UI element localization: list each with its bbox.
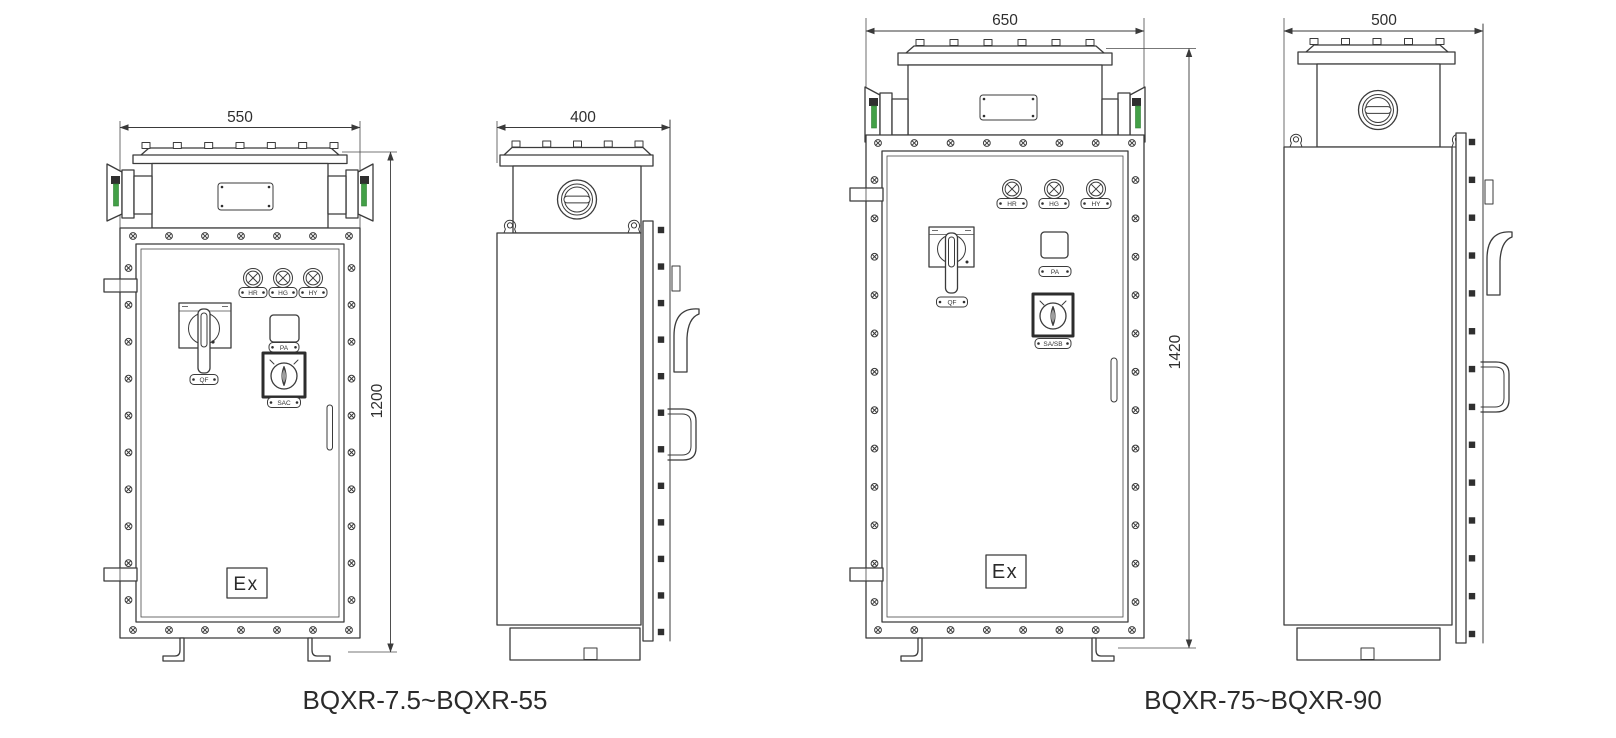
gland-bolt <box>360 176 369 184</box>
bolt-icon <box>1086 40 1094 46</box>
door <box>882 151 1128 622</box>
bolt-icon <box>543 141 551 147</box>
width-dim-label-large: 650 <box>992 12 1018 29</box>
width-dim-label-small: 550 <box>227 109 253 126</box>
bolt-icon <box>1469 442 1475 448</box>
bolt-icon <box>658 483 664 489</box>
bolt-icon <box>1469 366 1475 372</box>
bolt-icon <box>1469 479 1475 485</box>
terminal-box-lid <box>500 155 653 166</box>
height-dim-label-small: 1200 <box>369 383 386 418</box>
ex-marking: Ex <box>986 555 1026 588</box>
bolt-icon <box>658 336 664 342</box>
bolt-icon <box>574 141 582 147</box>
bolt-icon <box>950 40 958 46</box>
cabinet-body <box>497 233 641 625</box>
door-latch <box>1485 180 1493 204</box>
breaker-lever-side <box>674 309 699 372</box>
lamp-label: HY <box>308 290 318 297</box>
depth-dim-label-large: 500 <box>1371 12 1397 29</box>
front-view-small-model: 550 1200 <box>104 109 397 661</box>
caption-small-model: BQXR-7.5~BQXR-55 <box>303 685 548 715</box>
foot-right <box>1092 638 1114 661</box>
breaker-lever-side <box>1487 232 1512 295</box>
bolt-icon <box>604 141 612 147</box>
selector-label-plate: SAC <box>268 398 301 408</box>
door-edge <box>1456 133 1466 643</box>
bolt-icon <box>658 629 664 635</box>
hinge-tab <box>104 279 137 292</box>
foot-left <box>163 638 184 661</box>
bolt-icon <box>512 141 520 147</box>
lamp-icon <box>1045 180 1064 199</box>
door-latch <box>672 266 680 291</box>
gland-bolt <box>869 98 878 106</box>
hinge-tab <box>850 568 883 581</box>
lamp-label: HR <box>248 290 258 297</box>
base-plinth <box>510 628 640 660</box>
selector-label: SAC <box>277 400 291 407</box>
bolt-icon <box>1469 290 1475 296</box>
bolt-icon <box>1469 404 1475 410</box>
ex-marking: Ex <box>227 568 267 598</box>
bolt-icon <box>173 143 181 149</box>
bolt-icon <box>658 300 664 306</box>
ammeter: PA <box>269 315 299 352</box>
cable-gland-left <box>865 87 908 142</box>
gland-green-marker <box>872 106 877 128</box>
height-dim-label-large: 1420 <box>1167 334 1184 369</box>
bolt-icon <box>1469 252 1475 258</box>
drawing-sheet: 550 1200 <box>0 0 1616 738</box>
lamp-icon <box>1087 180 1106 199</box>
lamp-icon <box>1003 180 1022 199</box>
gland-green-marker <box>114 184 119 206</box>
bolt-icon <box>1052 40 1060 46</box>
bolt-icon <box>658 446 664 452</box>
cable-gland-right <box>1102 87 1145 142</box>
selector-switch: SAC <box>263 353 305 408</box>
selector-label-plate: SA/SB <box>1035 339 1071 349</box>
terminal-box <box>1317 64 1440 147</box>
foot-left <box>901 638 922 661</box>
hinge-tab <box>104 568 137 581</box>
depth-dim-label-small: 400 <box>570 109 596 126</box>
breaker-label: QF <box>947 300 956 307</box>
bolt-icon <box>1373 39 1381 45</box>
bolt-icon <box>1436 39 1444 45</box>
bolt-icon <box>1469 593 1475 599</box>
bolt-icon <box>1469 177 1475 183</box>
bolt-icon <box>1469 328 1475 334</box>
lamp-label: HG <box>1049 201 1059 208</box>
foot-right <box>308 638 330 661</box>
door-handle <box>1481 362 1509 412</box>
lamp-label-plate: HY <box>1081 199 1111 209</box>
lamp-label: HY <box>1091 201 1101 208</box>
bolt-icon <box>658 410 664 416</box>
bolt-icon <box>1469 517 1475 523</box>
cabinet-body <box>1284 147 1452 625</box>
bolt-icon <box>1310 39 1318 45</box>
side-view-large-model: 500 <box>1284 12 1512 660</box>
selector-label: SA/SB <box>1043 341 1062 348</box>
lamp-label: HG <box>278 290 288 297</box>
bolt-icon <box>658 263 664 269</box>
bolt-icon <box>1342 39 1350 45</box>
ammeter-label-plate: PA <box>1039 267 1071 277</box>
cable-gland-right <box>328 164 373 221</box>
bolt-icon <box>330 143 338 149</box>
base-plinth <box>1297 628 1440 660</box>
front-view-large-model: 650 1420 <box>850 12 1196 661</box>
bolt-icon <box>299 143 307 149</box>
breaker-label: QF <box>199 377 208 384</box>
lamp-label-plate: HR <box>997 199 1027 209</box>
bolt-icon <box>267 143 275 149</box>
lamp-label-plate: HG <box>1039 199 1069 209</box>
door-handle <box>668 409 696 460</box>
ammeter-label-plate: PA <box>269 343 299 353</box>
hinge-tab <box>850 188 883 201</box>
caption-large-model: BQXR-75~BQXR-90 <box>1144 685 1382 715</box>
terminal-box <box>898 46 1112 135</box>
lamp-icon <box>244 269 263 288</box>
bolt-icon <box>916 40 924 46</box>
technical-drawing: 550 1200 <box>0 0 1616 738</box>
bolt-icon <box>658 519 664 525</box>
ammeter: PA <box>1039 232 1071 277</box>
bolt-icon <box>658 556 664 562</box>
bolt-icon <box>1405 39 1413 45</box>
breaker-handle <box>198 309 210 373</box>
terminal-box <box>133 148 347 228</box>
bolt-icon <box>658 592 664 598</box>
bolt-icon <box>658 373 664 379</box>
bolt-icon <box>1018 40 1026 46</box>
bolt-icon <box>658 227 664 233</box>
lamp-label: HR <box>1007 201 1017 208</box>
lamp-icon <box>304 269 323 288</box>
lamp-label-plate: HY <box>299 288 327 298</box>
breaker-label-plate: QF <box>937 297 968 307</box>
selector-switch: SA/SB <box>1033 294 1073 349</box>
cable-gland-left <box>107 164 152 221</box>
bolt-icon <box>1469 139 1475 145</box>
bolt-icon <box>1469 214 1475 220</box>
bolt-icon <box>236 143 244 149</box>
lifting-eye-icon <box>1290 134 1302 147</box>
lamp-label-plate: HR <box>239 288 267 298</box>
bolt-icon <box>1469 631 1475 637</box>
breaker-handle <box>946 233 958 293</box>
ammeter-label: PA <box>280 345 289 352</box>
bolt-icon <box>205 143 213 149</box>
door-edge <box>643 221 653 641</box>
gland-green-marker <box>362 184 367 206</box>
bolt-icon <box>635 141 643 147</box>
bolt-icon <box>142 143 150 149</box>
breaker-label-plate: QF <box>190 375 218 385</box>
side-view-small-model: 400 <box>497 109 699 660</box>
terminal-box-lid <box>1298 52 1455 64</box>
door <box>136 244 344 622</box>
bolt-icon <box>1469 555 1475 561</box>
bolt-icon <box>984 40 992 46</box>
gland-green-marker <box>1136 106 1141 128</box>
lamp-icon <box>274 269 293 288</box>
ex-label: Ex <box>233 574 258 595</box>
ex-label: Ex <box>992 561 1018 583</box>
gland-bolt <box>111 176 120 184</box>
ammeter-label: PA <box>1051 269 1060 276</box>
gland-bolt <box>1132 98 1141 106</box>
lamp-label-plate: HG <box>269 288 297 298</box>
